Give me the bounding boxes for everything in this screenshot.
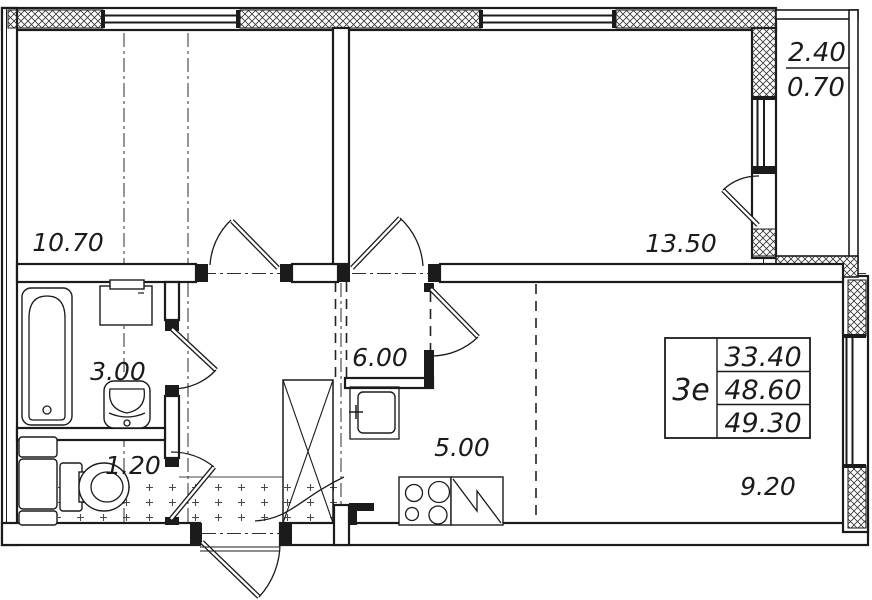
water-heater-cabinet (19, 437, 57, 525)
balcony-glazing (849, 10, 858, 262)
room-area-label-hallway: 6.00 (352, 343, 408, 372)
stamp-value-1: 33.40 (724, 342, 801, 373)
stamp-value-2: 48.60 (724, 375, 801, 406)
kitchen-counter (451, 477, 503, 525)
floor-plan-canvas: 10.70 13.50 3.00 1.20 6.00 5.00 9.20 2.4… (0, 0, 872, 600)
wall-bathroom-right (165, 282, 179, 320)
kitchen-sink (349, 387, 399, 439)
room-area-label-top-right-room: 13.50 (645, 229, 717, 258)
stamp-table: 3е 33.40 48.60 49.30 (665, 338, 810, 439)
washing-machine (100, 280, 152, 325)
balcony-area-label: 2.40 0.70 (786, 38, 850, 103)
room-area-label-kitchen: 5.00 (434, 433, 490, 462)
bathtub (22, 288, 72, 425)
wall-bottom-right (280, 523, 868, 545)
wall-corridor-pier (334, 505, 349, 545)
entrance-door (200, 542, 280, 597)
bathroom-sink (104, 381, 150, 428)
wall-left (2, 8, 17, 545)
room-area-label-living-room: 9.20 (740, 472, 796, 501)
door-top-right-room (352, 218, 423, 268)
stamp-value-3: 49.30 (724, 408, 801, 439)
kitchen-door (431, 289, 478, 356)
room-area-label-top-left-room: 10.70 (32, 228, 104, 257)
balcony-area-reduced: 0.70 (787, 73, 845, 103)
door-top-left-room (210, 220, 278, 268)
wall-bottom-left (2, 523, 200, 545)
balcony-wall-top (776, 10, 858, 19)
wall-partition-top-rooms (333, 28, 349, 264)
room-area-label-wc: 1.20 (105, 451, 161, 480)
stamp-unit-label: 3е (672, 373, 710, 408)
balcony-area-total: 2.40 (788, 38, 846, 68)
stove (399, 477, 451, 525)
room-area-label-bathroom: 3.00 (90, 357, 146, 386)
bathroom-door (172, 329, 216, 389)
floor-plan-drawing: 10.70 13.50 3.00 1.20 6.00 5.00 9.20 2.4… (0, 0, 872, 600)
